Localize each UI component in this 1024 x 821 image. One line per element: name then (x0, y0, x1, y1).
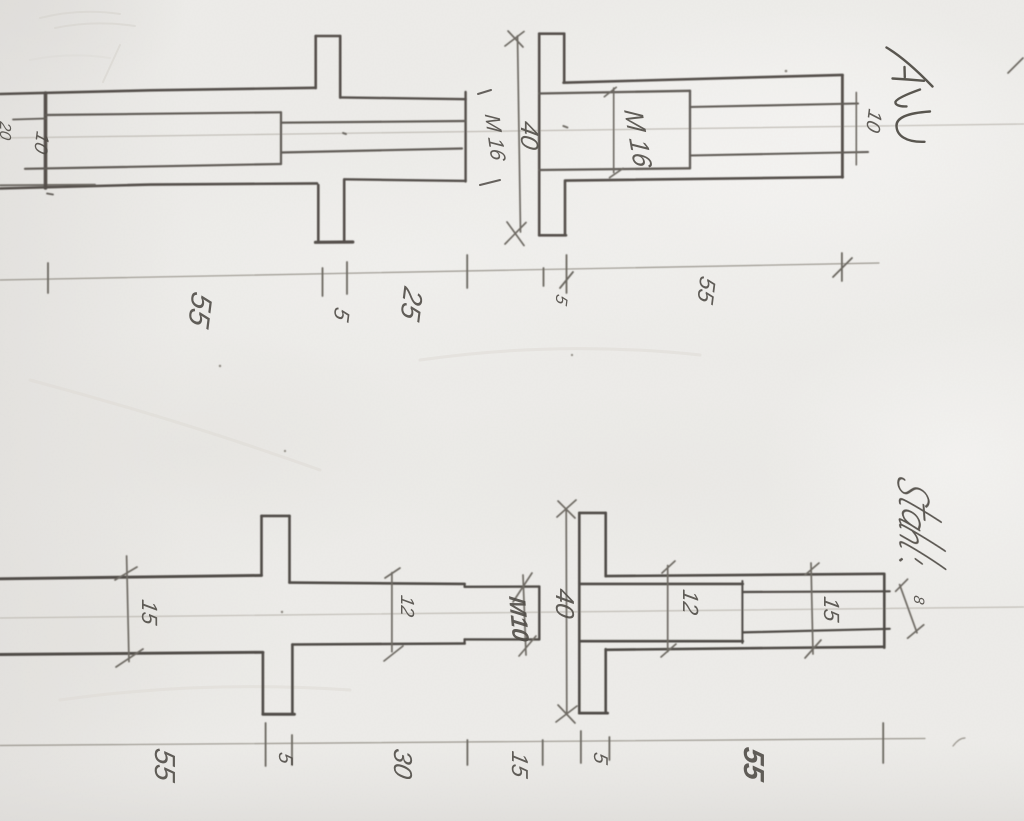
svg-text:40: 40 (550, 586, 580, 621)
svg-text:20: 20 (0, 119, 14, 141)
svg-text:15: 15 (137, 598, 162, 628)
svg-text:15: 15 (819, 595, 844, 625)
svg-text:40: 40 (515, 119, 543, 152)
svg-text:M10: M10 (504, 595, 534, 643)
svg-text:12: 12 (678, 588, 703, 617)
svg-text:12: 12 (396, 594, 417, 619)
